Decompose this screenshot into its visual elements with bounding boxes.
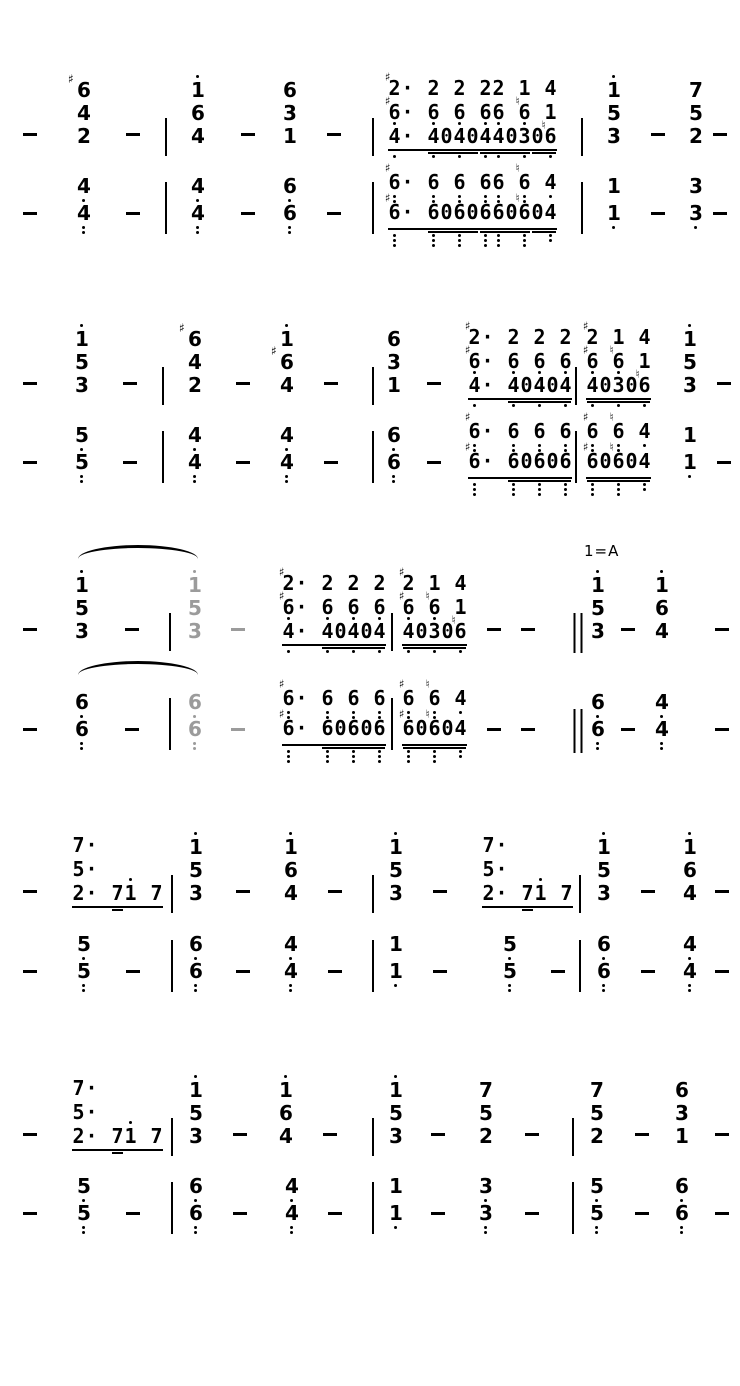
rest-dash xyxy=(621,628,635,631)
sixteenth-beam-segment: 6♯06♮04 xyxy=(402,714,467,744)
octave-dot-below xyxy=(352,755,355,758)
rest-dash xyxy=(23,1212,37,1215)
octave-dot-below xyxy=(538,404,541,407)
note: 3 xyxy=(189,882,203,905)
beam-voice-line: 6♯· 6 6 6 xyxy=(282,596,386,620)
beam-group: 2♯ 1 46♯ 6♮ 140306♮ xyxy=(586,326,651,400)
sixteenth-beam-segment: 40306♮ xyxy=(586,374,651,398)
note: 6 xyxy=(675,1079,689,1102)
note: 4 xyxy=(188,422,202,449)
chord: 153 xyxy=(389,1079,403,1148)
octave-dot-below xyxy=(80,747,83,750)
sharp-icon: ♯ xyxy=(464,320,471,332)
octave-dot-below xyxy=(538,488,541,491)
note: 0 xyxy=(546,374,559,396)
chord: 164 xyxy=(191,79,205,148)
octave-dot-above xyxy=(80,570,83,573)
note: 5 xyxy=(72,1101,85,1123)
note: 3 xyxy=(188,620,202,643)
note: 2 xyxy=(347,572,360,594)
note: 0 xyxy=(531,198,544,226)
note: 0 xyxy=(334,714,347,742)
note xyxy=(466,77,479,99)
beam-voice-line: 2♯ 1 4 xyxy=(586,326,651,350)
octave-dot-below xyxy=(523,244,526,247)
note: 4 xyxy=(373,620,386,642)
octave-dot-below xyxy=(473,483,476,486)
barline xyxy=(169,613,171,651)
octave-dot-above xyxy=(129,878,132,881)
note xyxy=(625,417,638,445)
note: 5 xyxy=(683,351,697,374)
note: 5 xyxy=(77,1200,91,1227)
rest-dash xyxy=(23,728,37,731)
octave-dot-below xyxy=(393,155,396,158)
beam-group: 6♯· 6 6 66 6♮ 46♯· 60606606♮04 xyxy=(388,168,557,230)
note: 6 xyxy=(507,350,520,372)
octave-dot-above xyxy=(285,324,288,327)
octave-dot-below xyxy=(473,488,476,491)
rest-dash xyxy=(23,382,37,385)
octave-dot-below xyxy=(193,742,196,745)
note: 6 xyxy=(373,684,386,712)
rest-dash xyxy=(23,890,37,893)
note: 2 xyxy=(479,77,492,99)
octave-dot-below xyxy=(392,480,395,483)
sharp-icon: ♯ xyxy=(582,441,589,453)
octave-dot-below xyxy=(287,650,290,653)
note: 6♯ xyxy=(586,350,599,372)
note: 5 xyxy=(590,1200,604,1227)
barline xyxy=(372,182,374,234)
note: 6♯ xyxy=(402,596,415,618)
tie-arc xyxy=(78,545,198,562)
chord: 752 xyxy=(479,1079,493,1148)
octave-dot-below xyxy=(643,404,646,407)
barline xyxy=(165,182,167,234)
octave-dot-below xyxy=(82,1231,85,1234)
octave-dot-below xyxy=(326,750,329,753)
octave-dot-below xyxy=(194,1231,197,1234)
barline xyxy=(581,182,583,234)
octave-dot-below xyxy=(392,475,395,478)
note: 3 xyxy=(675,1102,689,1125)
note: · xyxy=(481,447,494,475)
note: 6 xyxy=(321,714,334,742)
octave-dot-below xyxy=(484,155,487,158)
octave-dot-below xyxy=(473,404,476,407)
note xyxy=(334,596,347,618)
octave-dot-below xyxy=(538,483,541,486)
note: 3 xyxy=(607,125,621,148)
octave-dot-below xyxy=(82,984,85,987)
sharp-icon: ♯ xyxy=(464,411,471,423)
rest-dash xyxy=(23,628,37,631)
chord: 55 xyxy=(77,931,91,985)
note: 4 xyxy=(427,125,440,147)
note: 4 xyxy=(559,374,572,396)
note: · xyxy=(295,596,308,618)
note: 4 xyxy=(638,326,651,348)
beam-group: 2♯· 2 2 22 1 46♯· 6 6 66 6♮ 14· 40404403… xyxy=(388,77,557,151)
note: 6 xyxy=(188,716,202,743)
rest-dash xyxy=(427,461,441,464)
rest-dash xyxy=(125,628,139,631)
octave-dot-above xyxy=(660,570,663,573)
note: 4 xyxy=(533,374,546,396)
barline xyxy=(572,1182,574,1234)
octave-dot-below xyxy=(523,239,526,242)
sharp-icon: ♯ xyxy=(68,73,74,85)
octave-dot-below xyxy=(288,226,291,229)
note: 4 xyxy=(77,173,91,200)
note: 0 xyxy=(360,714,373,742)
octave-dot-above xyxy=(194,1075,197,1078)
octave-dot-below xyxy=(433,760,436,763)
octave-dot-above xyxy=(394,832,397,835)
octave-dot-below xyxy=(285,480,288,483)
octave-dot-below xyxy=(289,989,292,992)
note: 3 xyxy=(387,351,401,374)
octave-dot-below xyxy=(497,244,500,247)
octave-dot-below xyxy=(193,475,196,478)
chord: 164 xyxy=(284,836,298,905)
octave-dot-below xyxy=(407,755,410,758)
note: 3 xyxy=(597,882,611,905)
note xyxy=(308,572,321,594)
octave-dot-below xyxy=(497,239,500,242)
note: 5 xyxy=(482,858,495,880)
barline xyxy=(171,1118,173,1156)
beam-voice-line: 6♯· 6 6 6 xyxy=(468,417,572,447)
rest-dash xyxy=(521,628,535,631)
note: 3 xyxy=(518,125,531,147)
note: 4 xyxy=(454,684,467,712)
beamed-line: 2· 71 7 xyxy=(482,882,573,908)
note: 5 xyxy=(75,449,89,476)
barline xyxy=(372,940,374,992)
rest-dash xyxy=(651,212,665,215)
note: 7 xyxy=(72,1077,85,1099)
note xyxy=(494,326,507,348)
note: 7 xyxy=(150,1125,163,1147)
rest-dash xyxy=(487,728,501,731)
note: 2 xyxy=(188,374,202,397)
note: 1 xyxy=(189,836,203,859)
note: 2 xyxy=(427,77,440,99)
note: 0 xyxy=(440,198,453,226)
note: 3 xyxy=(612,374,625,396)
octave-dot-above xyxy=(196,75,199,78)
chord: 44 xyxy=(77,173,91,227)
chord: 44 xyxy=(188,422,202,476)
octave-dot-below xyxy=(617,404,620,407)
note: 6♯ xyxy=(388,198,401,226)
note: 6♯ xyxy=(282,714,295,742)
octave-dot-below xyxy=(287,755,290,758)
note: 1 xyxy=(683,836,697,859)
beam-voice-line: 7· xyxy=(72,834,163,858)
octave-dot-above xyxy=(688,832,691,835)
chord: 33 xyxy=(479,1173,493,1227)
beam-voice-line: 6♯ 6♮ 1 xyxy=(586,350,651,374)
natural-icon: ♮ xyxy=(540,119,547,131)
note xyxy=(547,882,560,904)
note: 6 xyxy=(387,449,401,476)
octave-dot-below xyxy=(660,747,663,750)
octave-dot-below xyxy=(393,234,396,237)
note: 4 xyxy=(280,422,294,449)
beam-group: 7·5·2· 71 7 xyxy=(482,834,573,908)
octave-dot-below xyxy=(549,234,552,237)
beamed-line: 6♯· 60606606♮04 xyxy=(388,198,557,230)
chord: 55 xyxy=(77,1173,91,1227)
sharp-icon: ♯ xyxy=(582,344,589,356)
beam-voice-line: 6♯ 6♮ 4 xyxy=(586,417,651,447)
note: 1 xyxy=(124,1125,137,1147)
chord: 153 xyxy=(189,1079,203,1148)
note: 5 xyxy=(590,1173,604,1200)
barline xyxy=(575,367,577,405)
barline xyxy=(169,698,171,750)
octave-dot-below xyxy=(459,750,462,753)
octave-dot-below xyxy=(596,742,599,745)
sixteenth-beam-segment: 6060 xyxy=(427,198,479,228)
chord: 153 xyxy=(389,836,403,905)
chord: 153 xyxy=(597,836,611,905)
note: 5 xyxy=(591,597,605,620)
note xyxy=(546,326,559,348)
beam-voice-line: 5· xyxy=(72,1101,163,1125)
sixteenth-beam-segment: 40404 xyxy=(507,374,572,398)
octave-dot-below xyxy=(290,1231,293,1234)
note: 6 xyxy=(591,689,605,716)
octave-dot-below xyxy=(688,989,691,992)
octave-dot-below xyxy=(458,244,461,247)
note: 1 xyxy=(683,328,697,351)
rest-dash xyxy=(713,212,727,215)
rest-dash xyxy=(236,461,250,464)
note xyxy=(360,684,373,712)
octave-dot-below xyxy=(595,1226,598,1229)
note: 4 xyxy=(402,620,415,642)
note: 6 xyxy=(188,689,202,716)
octave-dot-below xyxy=(407,650,410,653)
note: 6 xyxy=(591,716,605,743)
rest-dash xyxy=(231,728,245,731)
note: 4 xyxy=(347,620,360,642)
octave-dot-below xyxy=(432,244,435,247)
note: 2 xyxy=(559,326,572,348)
note: 6 xyxy=(75,689,89,716)
double-barline xyxy=(574,613,583,653)
note: 6 xyxy=(283,79,297,102)
chord: 11 xyxy=(607,173,621,227)
note: 4 xyxy=(683,882,697,905)
note: 6 xyxy=(453,198,466,226)
octave-dot-below xyxy=(602,989,605,992)
note: 6 xyxy=(675,1200,689,1227)
note: 7 xyxy=(479,1079,493,1102)
note: 3 xyxy=(389,882,403,905)
note: 6 xyxy=(283,173,297,200)
sharp-icon: ♯ xyxy=(582,320,589,332)
beam-voice-line: 2♯· 2 2 2 xyxy=(468,326,572,350)
note: 6 xyxy=(533,417,546,445)
note: 0 xyxy=(415,620,428,642)
sharp-icon: ♯ xyxy=(398,590,405,602)
octave-dot-above xyxy=(602,832,605,835)
chord: 164 xyxy=(279,1079,293,1148)
note: 5 xyxy=(389,859,403,882)
note: 6 xyxy=(427,168,440,196)
octave-dot-below xyxy=(196,226,199,229)
note: · xyxy=(85,1101,98,1123)
note: 6 xyxy=(507,447,520,475)
rest-dash xyxy=(233,1212,247,1215)
rest-dash xyxy=(433,890,447,893)
note: 5 xyxy=(503,958,517,985)
note: · xyxy=(481,374,494,396)
note: 1 xyxy=(389,1173,403,1200)
rest-dash xyxy=(233,1133,247,1136)
octave-dot-below xyxy=(617,493,620,496)
note: 6♮ xyxy=(518,101,531,123)
rest-dash xyxy=(327,212,341,215)
natural-icon: ♮ xyxy=(514,95,521,107)
note: 1 xyxy=(279,1079,293,1102)
octave-dot-above xyxy=(394,1075,397,1078)
sharp-icon: ♯ xyxy=(398,708,405,720)
note: 7 xyxy=(590,1079,604,1102)
note: 0 xyxy=(599,374,612,396)
note: 1 xyxy=(683,422,697,449)
octave-dot-below xyxy=(194,1226,197,1229)
note: 3 xyxy=(389,1125,403,1148)
sixteenth-beam-segment: 7 xyxy=(111,882,124,906)
sharp-icon: ♯ xyxy=(582,411,589,423)
barline xyxy=(579,875,581,913)
octave-dot-below xyxy=(378,760,381,763)
chord: 66 xyxy=(189,1173,203,1227)
octave-dot-above xyxy=(539,878,542,881)
octave-dot-above xyxy=(284,1075,287,1078)
note: 2 xyxy=(77,125,91,148)
note: 1 xyxy=(389,1079,403,1102)
chord: 66 xyxy=(75,689,89,743)
beam-voice-line: 5· xyxy=(482,858,573,882)
beamed-line: 4· 40404 xyxy=(468,374,572,400)
chord: 55 xyxy=(75,422,89,476)
octave-dot-below xyxy=(484,1231,487,1234)
chord: 6♯42 xyxy=(188,328,202,397)
note: 1 xyxy=(75,574,89,597)
note: 4 xyxy=(191,200,205,227)
natural-icon: ♮ xyxy=(634,368,641,380)
note: 6♮ xyxy=(612,350,625,372)
chord: 66 xyxy=(675,1173,689,1227)
note: · xyxy=(85,1125,98,1147)
beamed-line: 40306♮ xyxy=(402,620,467,646)
note: 4 xyxy=(638,417,651,445)
note: 0 xyxy=(625,447,638,475)
octave-dot-below xyxy=(289,984,292,987)
rest-dash xyxy=(126,1212,140,1215)
note: 6 xyxy=(492,168,505,196)
note: 1 xyxy=(189,1079,203,1102)
note: · xyxy=(401,125,414,147)
note: · xyxy=(481,326,494,348)
chord: 44 xyxy=(191,173,205,227)
octave-dot-below xyxy=(497,234,500,237)
octave-dot-below xyxy=(433,750,436,753)
beamed-line: 6♯06♮04 xyxy=(586,447,651,479)
chord: 33 xyxy=(689,173,703,227)
note: · xyxy=(495,834,508,856)
rest-dash xyxy=(236,970,250,973)
rest-dash xyxy=(651,133,665,136)
beam-group: 7·5·2· 71 7 xyxy=(72,834,163,908)
octave-dot-below xyxy=(80,742,83,745)
note: 4 xyxy=(544,198,557,226)
note: 4 xyxy=(479,125,492,147)
octave-dot-below xyxy=(694,226,697,229)
note: · xyxy=(85,882,98,904)
rest-dash xyxy=(427,382,441,385)
octave-dot-below xyxy=(680,1226,683,1229)
octave-dot-below xyxy=(459,650,462,653)
note: 1 xyxy=(597,836,611,859)
note: 6 xyxy=(479,101,492,123)
octave-dot-below xyxy=(508,989,511,992)
note xyxy=(494,350,507,372)
barline xyxy=(171,875,173,913)
natural-icon: ♮ xyxy=(514,162,521,174)
chord: 55 xyxy=(590,1173,604,1227)
note: · xyxy=(495,858,508,880)
beamed-line: 2· 71 7 xyxy=(72,1125,163,1151)
octave-dot-below xyxy=(82,1226,85,1229)
chord: 164 xyxy=(655,574,669,643)
sixteenth-beam-segment: 04 xyxy=(531,198,557,228)
note: 0 xyxy=(546,447,559,475)
note xyxy=(625,326,638,348)
chord: 11 xyxy=(683,422,697,476)
beam-voice-line: 6♯· 6 6 6 xyxy=(468,350,572,374)
rest-dash xyxy=(431,1133,445,1136)
note: 2 xyxy=(453,77,466,99)
octave-dot-below xyxy=(288,231,291,234)
rest-dash xyxy=(635,1133,649,1136)
octave-dot-below xyxy=(458,239,461,242)
barline xyxy=(391,698,393,750)
chord: 153 xyxy=(75,328,89,397)
rest-dash xyxy=(521,728,535,731)
note: 1 xyxy=(389,931,403,958)
beam-group: 6♯ 6♮ 46♯06♮04 xyxy=(402,684,467,746)
note xyxy=(137,1125,150,1147)
note: 3 xyxy=(591,620,605,643)
note: 0 xyxy=(360,620,373,642)
chord: 153 xyxy=(189,836,203,905)
note: 4 xyxy=(280,374,294,397)
rest-dash xyxy=(621,728,635,731)
note: 6♯ xyxy=(388,101,401,123)
sixteenth-beam-segment: 4040 xyxy=(427,125,479,149)
chord: 16♯4 xyxy=(280,328,294,397)
note: 5 xyxy=(590,1102,604,1125)
note: 2 xyxy=(590,1125,604,1148)
